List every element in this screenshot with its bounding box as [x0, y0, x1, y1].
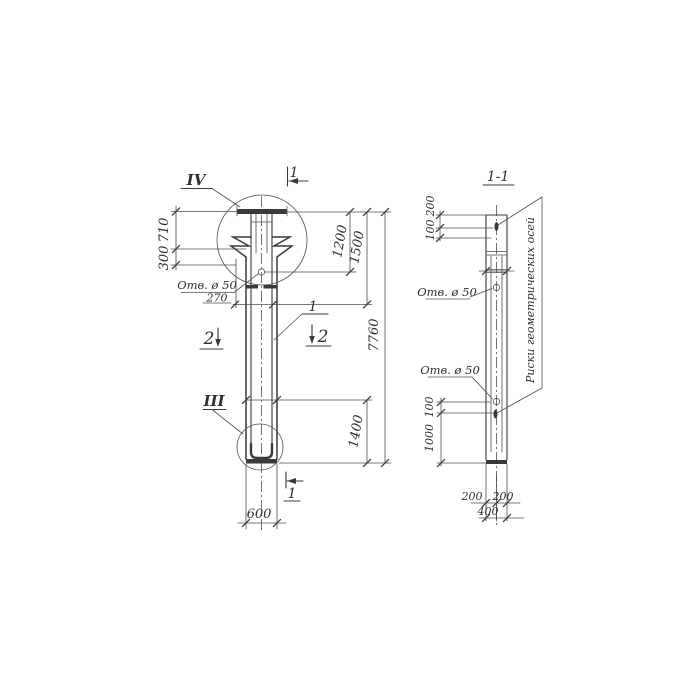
axis-mark-lower	[494, 410, 498, 419]
dim-1000: 1000	[423, 424, 436, 452]
detail-label-iii: III	[202, 392, 225, 410]
detail-label-iv: IV	[186, 171, 207, 189]
dim-200-left: 200	[461, 490, 483, 503]
dim-200-right: 200	[492, 490, 514, 503]
dim-100-top: 100	[424, 220, 437, 241]
axes-note-leader-bottom	[497, 388, 542, 413]
detail-circle-top	[217, 195, 307, 285]
dim-710: 710	[157, 218, 172, 243]
dim-1200: 1200	[330, 224, 351, 259]
section-view: 1-1	[417, 169, 542, 528]
axes-note: Риски геометрических осей	[524, 217, 537, 384]
part-callout: 1	[309, 299, 318, 315]
seam-mark-left	[246, 285, 258, 289]
hole-lower-leader	[472, 377, 493, 399]
dim-270: 270	[206, 292, 228, 305]
section-arrow-bottom	[287, 478, 296, 484]
front-view: 710 300 1200 1500 7760 1400 600 Отв. ø 5…	[157, 165, 391, 532]
seam-mark-right	[264, 285, 278, 289]
dim-200-top: 200	[424, 196, 437, 218]
section-arrow-left-2	[215, 339, 221, 347]
section-mark-left-2: 2	[203, 329, 215, 349]
front-view-column	[231, 196, 292, 532]
section-arrow-right-2	[309, 336, 315, 344]
front-view-dimensions: 710 300 1200 1500 7760 1400 600 Отв. ø 5…	[157, 206, 391, 529]
dim-300: 300	[157, 246, 172, 271]
section-title: 1-1	[487, 169, 510, 185]
dim-600: 600	[247, 507, 272, 522]
hole-note-upper: Отв. ø 50	[417, 285, 477, 299]
console-right	[272, 237, 292, 257]
axis-mark-upper	[495, 222, 499, 231]
hole-note-lower: Отв. ø 50	[420, 363, 480, 377]
section-mark-bottom: 1	[288, 486, 297, 502]
drawing-sheet: 710 300 1200 1500 7760 1400 600 Отв. ø 5…	[0, 0, 700, 700]
dim-1400: 1400	[346, 414, 367, 449]
column-technical-drawing: 710 300 1200 1500 7760 1400 600 Отв. ø 5…	[0, 0, 700, 700]
section-bottom-edge	[486, 460, 507, 464]
dim-400: 400	[477, 505, 499, 518]
dim-7760: 7760	[367, 318, 382, 351]
dim-100-bottom: 100	[423, 397, 436, 418]
section-mark-top: 1	[290, 165, 299, 181]
console-left	[231, 237, 251, 257]
bottom-edge	[246, 459, 277, 464]
section-mark-right-2: 2	[317, 327, 329, 347]
cap-plate	[237, 209, 287, 214]
hole-note-front: Отв. ø 50	[177, 278, 237, 292]
section-view-dimensions: 200 100 100 1000 200 200 400	[423, 196, 524, 522]
